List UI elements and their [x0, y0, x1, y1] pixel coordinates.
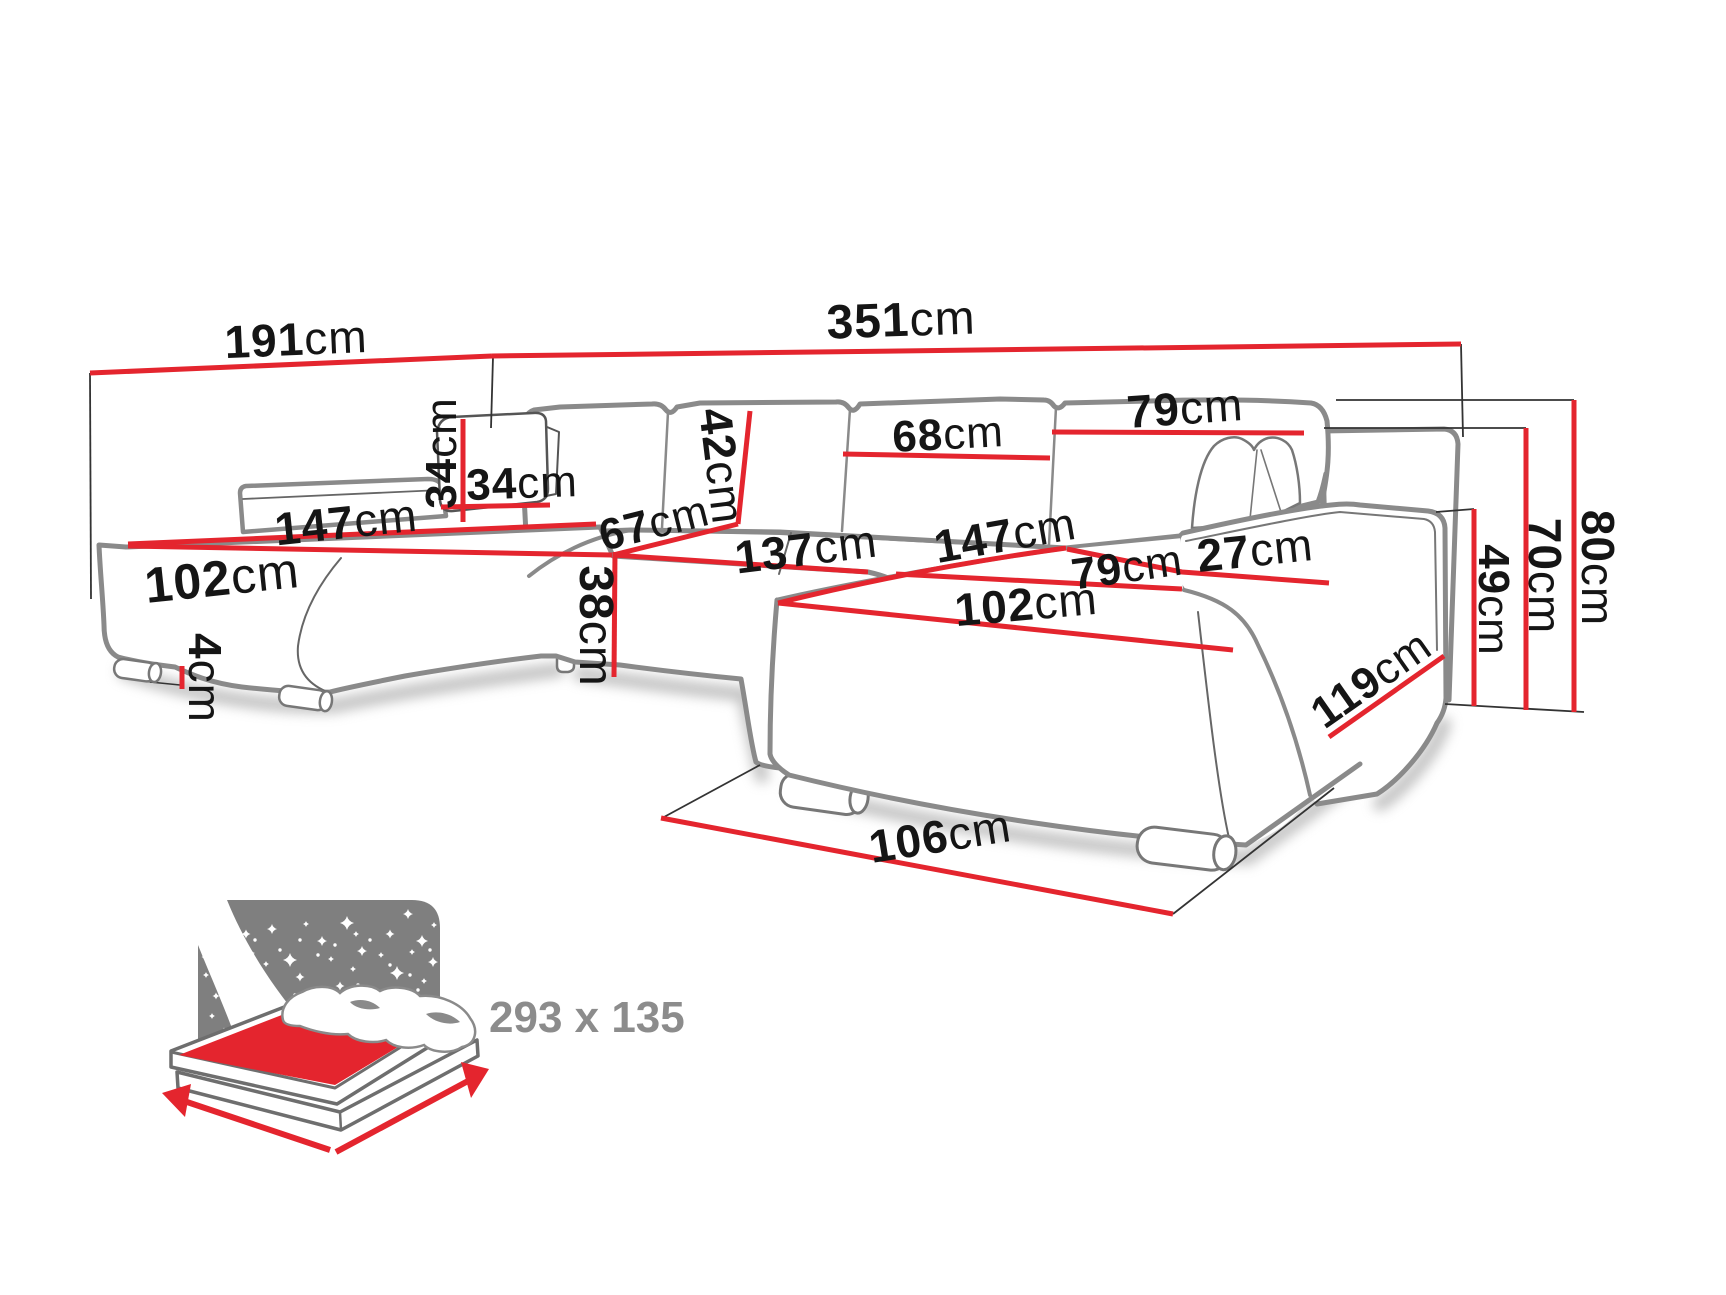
svg-text:4cm: 4cm [179, 633, 231, 723]
svg-text:351cm: 351cm [826, 291, 977, 349]
svg-text:79cm: 79cm [1125, 378, 1245, 438]
svg-text:70cm: 70cm [1519, 518, 1571, 635]
svg-text:34cm: 34cm [417, 397, 466, 509]
svg-text:34cm: 34cm [465, 457, 578, 510]
svg-text:38cm: 38cm [570, 565, 623, 686]
svg-text:191cm: 191cm [223, 310, 368, 368]
svg-text:49cm: 49cm [1470, 544, 1519, 656]
svg-text:293 x 135: 293 x 135 [489, 993, 685, 1042]
svg-text:80cm: 80cm [1572, 510, 1624, 627]
svg-text:68cm: 68cm [891, 407, 1005, 462]
